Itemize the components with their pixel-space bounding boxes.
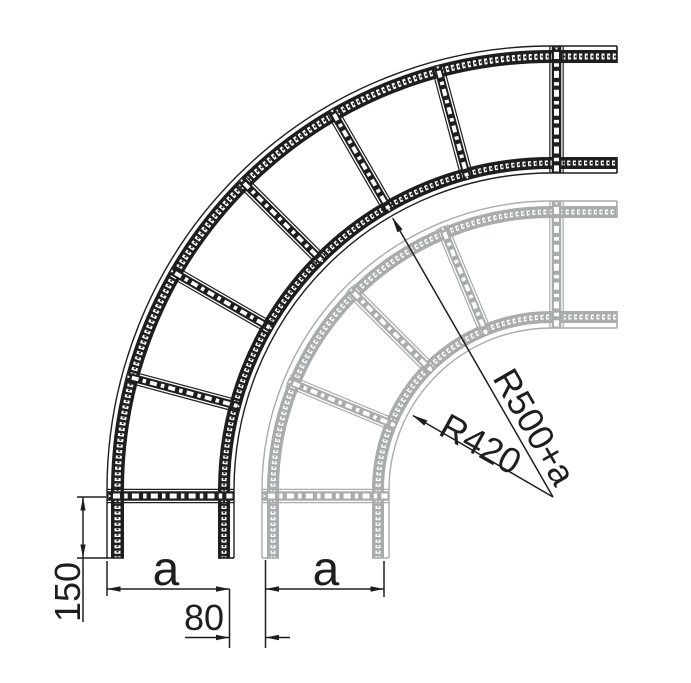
dim-a-front-arrow-left [107, 586, 121, 591]
rung [107, 489, 234, 502]
dim-r500a-arrow [392, 217, 403, 232]
dim-150-label: 150 [47, 562, 88, 622]
dim-a-front-arrow-right [216, 586, 230, 591]
dim-a-back-arrow-right [371, 586, 385, 591]
rung [262, 489, 389, 502]
dim-150-arrow-down [80, 545, 85, 559]
dim-80-label: 80 [184, 597, 224, 638]
dim-150-arrow-up [80, 497, 85, 511]
dim-a-front-label: a [153, 543, 180, 596]
rung [436, 224, 492, 338]
rung [345, 284, 437, 376]
dim-r420-arrow [412, 415, 427, 426]
rung [431, 63, 473, 181]
rung [550, 201, 563, 328]
outer-rail-band [273, 212, 617, 558]
drawing-canvas: 150 a a 80 R420 R500+a [0, 0, 691, 683]
dim-a-back-arrow-left [266, 586, 280, 591]
dim-80-arrow-right [266, 635, 280, 640]
rung [550, 46, 563, 173]
outer-rail-band-slots [273, 212, 617, 558]
rung [167, 265, 276, 335]
rung [285, 375, 399, 431]
outer-rail-band-dots [273, 212, 617, 558]
rung [236, 175, 328, 267]
dim-a-back-label: a [313, 543, 340, 596]
rung [124, 370, 242, 412]
rung [326, 106, 396, 215]
